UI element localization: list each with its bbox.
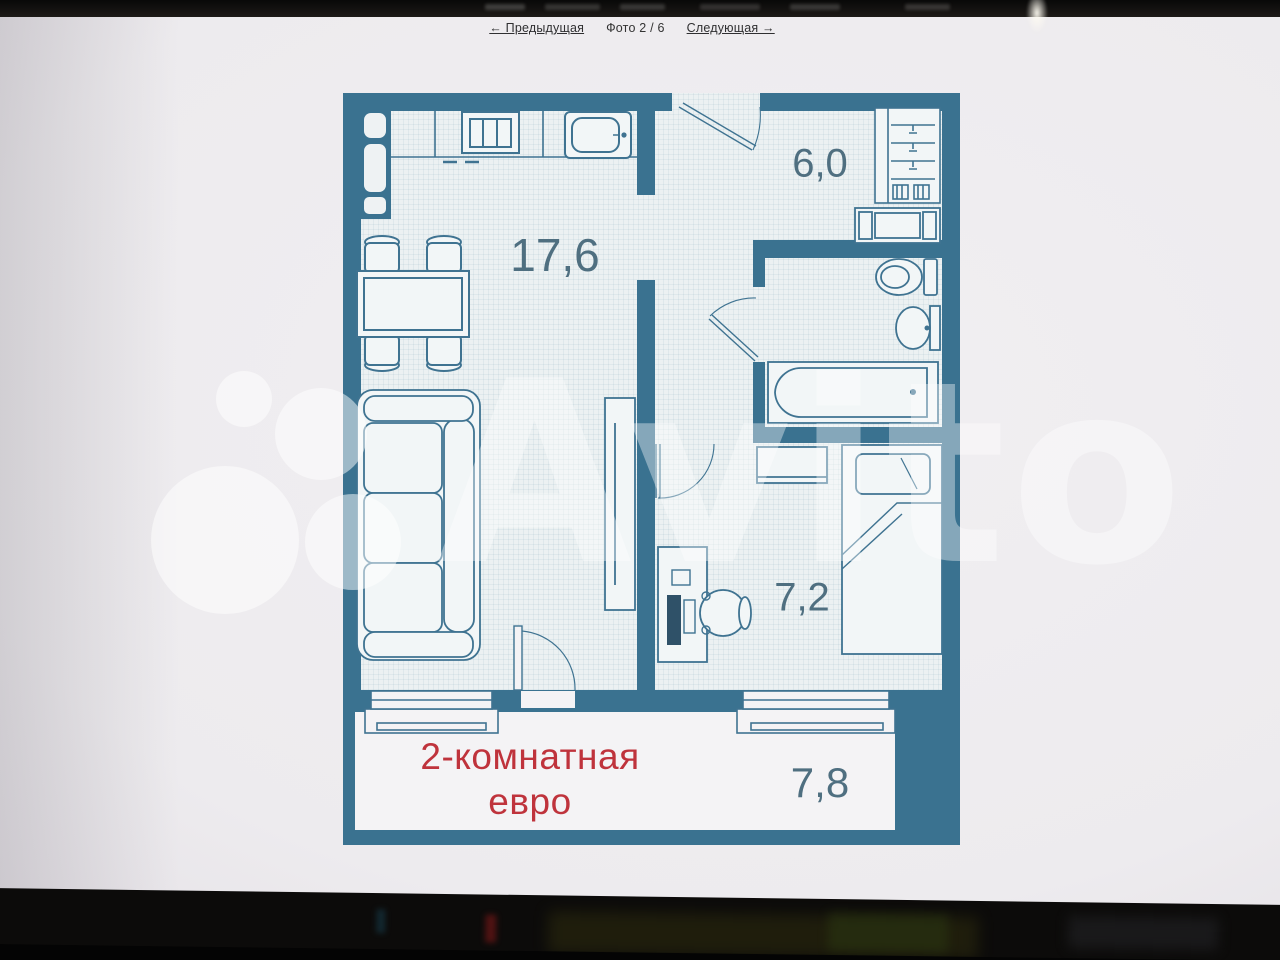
shoe-bench-icon — [855, 208, 940, 243]
kitchen-sink-icon — [565, 112, 631, 158]
dresser-icon — [757, 447, 827, 483]
bedroom-window — [737, 691, 895, 733]
bedroom-area-label: 7,2 — [774, 576, 830, 621]
wardrobe-icon — [875, 108, 940, 203]
watermark-dot — [151, 466, 299, 614]
screen-photo: ← Предыдущая Фото 2 / 6 Следующая → — [0, 0, 1280, 960]
desk-reflection — [828, 913, 948, 953]
balcony-area-label: 7,8 — [791, 759, 849, 807]
monitor-top-bezel — [0, 0, 1280, 17]
previous-photo-link[interactable]: ← Предыдущая — [489, 21, 584, 35]
desk-reflection — [1068, 916, 1218, 950]
bedroom-door — [656, 444, 714, 498]
dining-table-icon — [357, 236, 469, 371]
floor-plan-image[interactable]: 17,6 6,0 7,2 7,8 2-комнатная евро — [343, 93, 960, 845]
watermark-dot — [275, 388, 367, 480]
desk-icon — [658, 547, 707, 662]
bezel-reflection — [790, 4, 840, 10]
hall-area-label: 6,0 — [792, 142, 848, 187]
stove-icon — [462, 112, 519, 153]
bezel-reflection — [485, 4, 525, 10]
bed-icon — [842, 445, 942, 654]
balcony-door — [514, 626, 575, 708]
photo-navigation: ← Предыдущая Фото 2 / 6 Следующая → — [0, 21, 1272, 35]
washbasin-icon — [896, 306, 940, 350]
bathtub-icon — [768, 362, 938, 423]
fridge-icon — [359, 107, 391, 219]
living-window — [365, 691, 498, 733]
bezel-reflection — [545, 4, 600, 10]
watermark-dot — [305, 494, 401, 590]
watermark-dot — [216, 371, 272, 427]
living-room-area-label: 17,6 — [510, 228, 600, 282]
bezel-reflection — [620, 4, 665, 10]
floor-plan-drawing — [343, 93, 960, 845]
bezel-reflection — [905, 4, 950, 10]
bathroom-door — [709, 298, 758, 361]
tv-icon — [605, 398, 635, 610]
desk-reflection — [376, 909, 385, 933]
next-photo-link[interactable]: Следующая → — [687, 21, 775, 35]
office-chair-icon — [700, 590, 751, 636]
bezel-reflection — [700, 4, 760, 10]
desk-reflection — [485, 915, 496, 943]
photo-viewer-page: ← Предыдущая Фото 2 / 6 Следующая → — [0, 0, 1280, 960]
photo-counter: Фото 2 / 6 — [606, 21, 665, 35]
entrance-door — [679, 103, 760, 150]
plan-caption-line2: евро — [420, 779, 639, 824]
plan-caption: 2-комнатная евро — [420, 734, 639, 824]
toilet-icon — [876, 259, 937, 295]
plan-caption-line1: 2-комнатная — [420, 734, 639, 779]
